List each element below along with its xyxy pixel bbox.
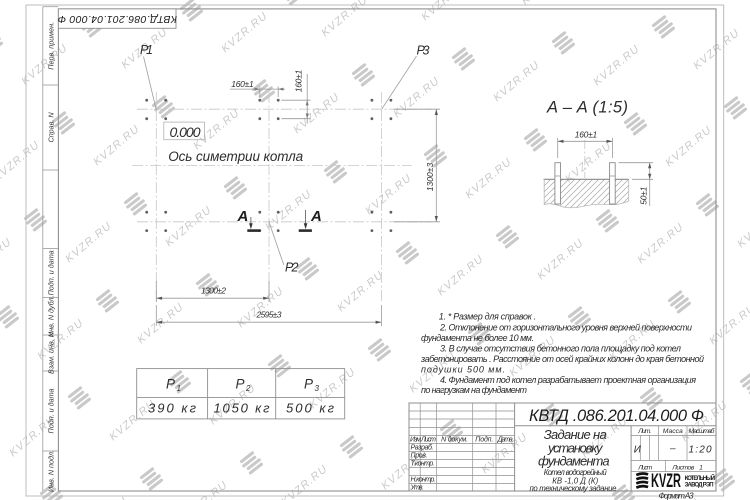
svg-text:A – A (1:5): A – A (1:5) (546, 99, 628, 117)
svg-text:1300±2: 1300±2 (201, 286, 226, 296)
svg-text:P: P (304, 377, 313, 392)
svg-text:Перв. примен.: Перв. примен. (47, 22, 56, 70)
svg-text:ЗАВОД РЭП: ЗАВОД РЭП (685, 483, 714, 489)
svg-text:Котел водогрейный: Котел водогрейный (544, 468, 608, 477)
svg-text:Ось симетрии котла: Ось симетрии котла (168, 149, 303, 164)
svg-text:1: 1 (699, 464, 703, 471)
svg-text:1. * Размер для справок .: 1. * Размер для справок . (439, 312, 537, 322)
svg-text:50±1: 50±1 (638, 186, 648, 204)
svg-text:2: 2 (245, 384, 251, 393)
svg-text:Н.контр.: Н.контр. (411, 477, 436, 484)
svg-text:Разраб.: Разраб. (411, 444, 434, 452)
svg-text:2595±3: 2595±3 (256, 310, 282, 320)
svg-text:Подп.: Подп. (475, 435, 493, 443)
svg-text:Лит.: Лит. (637, 428, 651, 435)
svg-text:фундамента не более 10 мм.: фундамента не более 10 мм. (421, 333, 534, 343)
svg-text:фундамента: фундамента (538, 453, 610, 468)
svg-text:по нагрузкам на фундамент: по нагрузкам на фундамент (421, 385, 528, 395)
svg-text:P: P (166, 377, 175, 392)
svg-text:1300±3: 1300±3 (425, 162, 435, 191)
svg-text:KVZR: KVZR (651, 471, 681, 492)
svg-text:КВТД.086.201.04.000 Ф: КВТД.086.201.04.000 Ф (57, 13, 177, 25)
svg-text:Утв.: Утв. (410, 485, 424, 492)
svg-text:0.000: 0.000 (170, 124, 201, 140)
svg-text:забетонировать . Расстояние: забетонировать . Расстояние от осей край… (420, 354, 704, 364)
svg-text:P: P (236, 377, 245, 392)
svg-text:И: И (634, 445, 642, 456)
svg-text:Подп. и дата: Подп. и дата (47, 250, 56, 295)
svg-text:P1: P1 (140, 43, 153, 57)
svg-text:Масса: Масса (663, 428, 683, 435)
svg-text:1: 1 (177, 384, 181, 393)
svg-text:3. В случае отсутствия бет: 3. В случае отсутствия бетонного пола пл… (440, 344, 681, 354)
svg-text:Масштаб: Масштаб (689, 427, 716, 435)
svg-text:Инв. N дубл.: Инв. N дубл. (47, 295, 56, 337)
svg-text:A: A (310, 208, 322, 225)
svg-text:по техническому задание: по техническому задание (530, 484, 618, 493)
svg-text:КВТД .086.201.04.000 Ф: КВТД .086.201.04.000 Ф (529, 407, 704, 425)
svg-text:N докум.: N докум. (441, 435, 468, 443)
svg-text:подушки 500 мм.: подушки 500 мм. (421, 365, 505, 375)
svg-text:2. Отклонение от горизонтал: 2. Отклонение от горизонтального уровня … (439, 323, 692, 333)
svg-text:Т.контр.: Т.контр. (411, 461, 435, 468)
svg-text:Взам. инв. N: Взам. инв. N (47, 331, 56, 374)
svg-text:Формат А3: Формат А3 (659, 491, 694, 500)
svg-text:160±1: 160±1 (575, 130, 598, 140)
svg-text:КОТЕЛЬНЫЙ: КОТЕЛЬНЫЙ (685, 474, 716, 482)
svg-text:160±1: 160±1 (294, 69, 304, 92)
svg-text:A: A (237, 208, 249, 225)
svg-text:Пров.: Пров. (411, 453, 428, 460)
svg-text:500 кг: 500 кг (286, 401, 335, 416)
svg-text:Изм.Лист: Изм.Лист (410, 436, 436, 443)
svg-text:Дата: Дата (497, 436, 513, 443)
svg-text:1050 кг: 1050 кг (214, 401, 271, 416)
svg-text:Инв. N подл.: Инв. N подл. (47, 450, 56, 492)
svg-text:4. Фундамент под котел раз: 4. Фундамент под котел разрабатывает про… (440, 375, 696, 385)
svg-text:160±1: 160±1 (231, 79, 254, 89)
svg-text:–: – (669, 444, 676, 455)
svg-text:P3: P3 (417, 44, 430, 58)
svg-text:P2: P2 (285, 261, 299, 275)
svg-text:1:20: 1:20 (689, 445, 712, 456)
svg-text:3: 3 (315, 384, 320, 393)
svg-text:Подп. и дата: Подп. и дата (47, 389, 56, 434)
svg-text:Справ. N: Справ. N (47, 112, 56, 143)
